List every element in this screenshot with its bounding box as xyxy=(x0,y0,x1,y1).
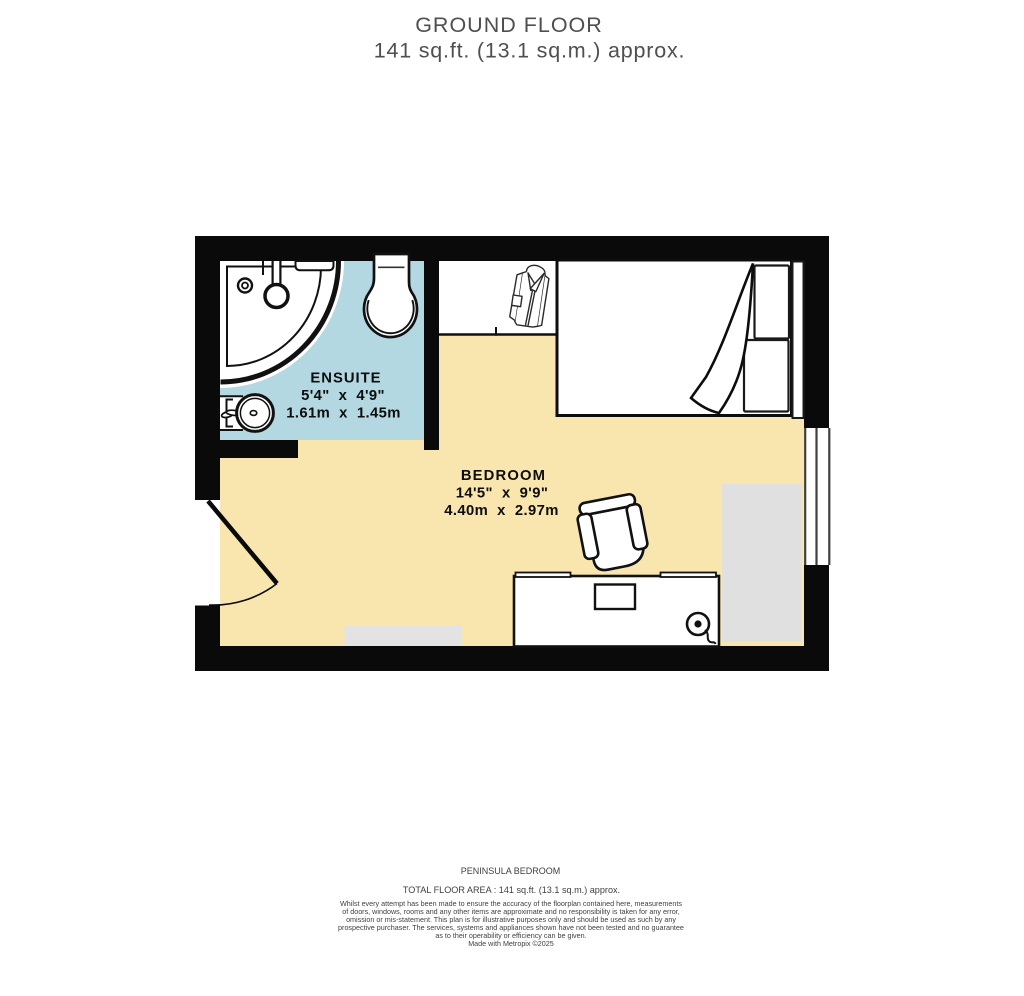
svg-text:4.40m x 2.97m: 4.40m x 2.97m xyxy=(444,503,559,519)
svg-text:PENINSULA BEDROOM: PENINSULA BEDROOM xyxy=(461,866,561,876)
svg-text:1.61m x 1.45m: 1.61m x 1.45m xyxy=(286,405,401,421)
svg-text:GROUND FLOOR: GROUND FLOOR xyxy=(415,13,603,37)
svg-text:141 sq.ft. (13.1 sq.m.) approx: 141 sq.ft. (13.1 sq.m.) approx. xyxy=(374,39,686,63)
svg-text:BEDROOM: BEDROOM xyxy=(461,468,546,484)
svg-text:5'4" x 4'9": 5'4" x 4'9" xyxy=(301,388,385,404)
svg-text:TOTAL FLOOR AREA : 141 sq.ft.: TOTAL FLOOR AREA : 141 sq.ft. (13.1 sq.m… xyxy=(403,885,620,895)
svg-text:14'5" x 9'9": 14'5" x 9'9" xyxy=(456,485,549,501)
svg-text:Made with Metropix ©2025: Made with Metropix ©2025 xyxy=(468,939,554,948)
svg-text:ENSUITE: ENSUITE xyxy=(310,371,381,387)
